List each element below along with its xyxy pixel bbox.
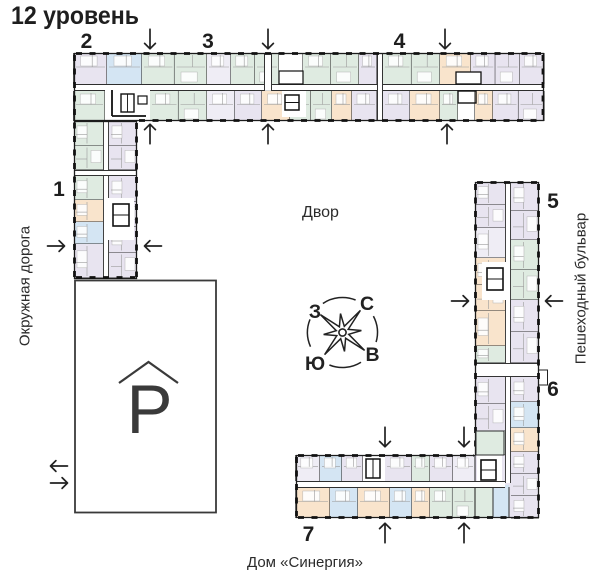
svg-text:12 уровень: 12 уровень xyxy=(11,2,139,30)
svg-text:Двор: Двор xyxy=(302,204,339,221)
svg-text:С: С xyxy=(360,293,374,315)
svg-text:3: 3 xyxy=(202,30,214,53)
svg-text:7: 7 xyxy=(303,523,315,546)
svg-text:Окружная дорога: Окружная дорога xyxy=(17,225,34,346)
svg-text:З: З xyxy=(309,301,321,323)
svg-text:2: 2 xyxy=(81,30,93,53)
svg-text:Ю: Ю xyxy=(305,353,325,375)
svg-text:1: 1 xyxy=(53,178,65,201)
svg-text:5: 5 xyxy=(547,190,559,213)
svg-text:Пешеходный бульвар: Пешеходный бульвар xyxy=(573,213,590,364)
svg-text:Р: Р xyxy=(126,371,172,448)
svg-text:4: 4 xyxy=(394,30,406,53)
svg-text:Дом «Синергия»: Дом «Синергия» xyxy=(247,554,363,571)
svg-text:В: В xyxy=(365,344,379,366)
svg-text:6: 6 xyxy=(547,378,559,401)
